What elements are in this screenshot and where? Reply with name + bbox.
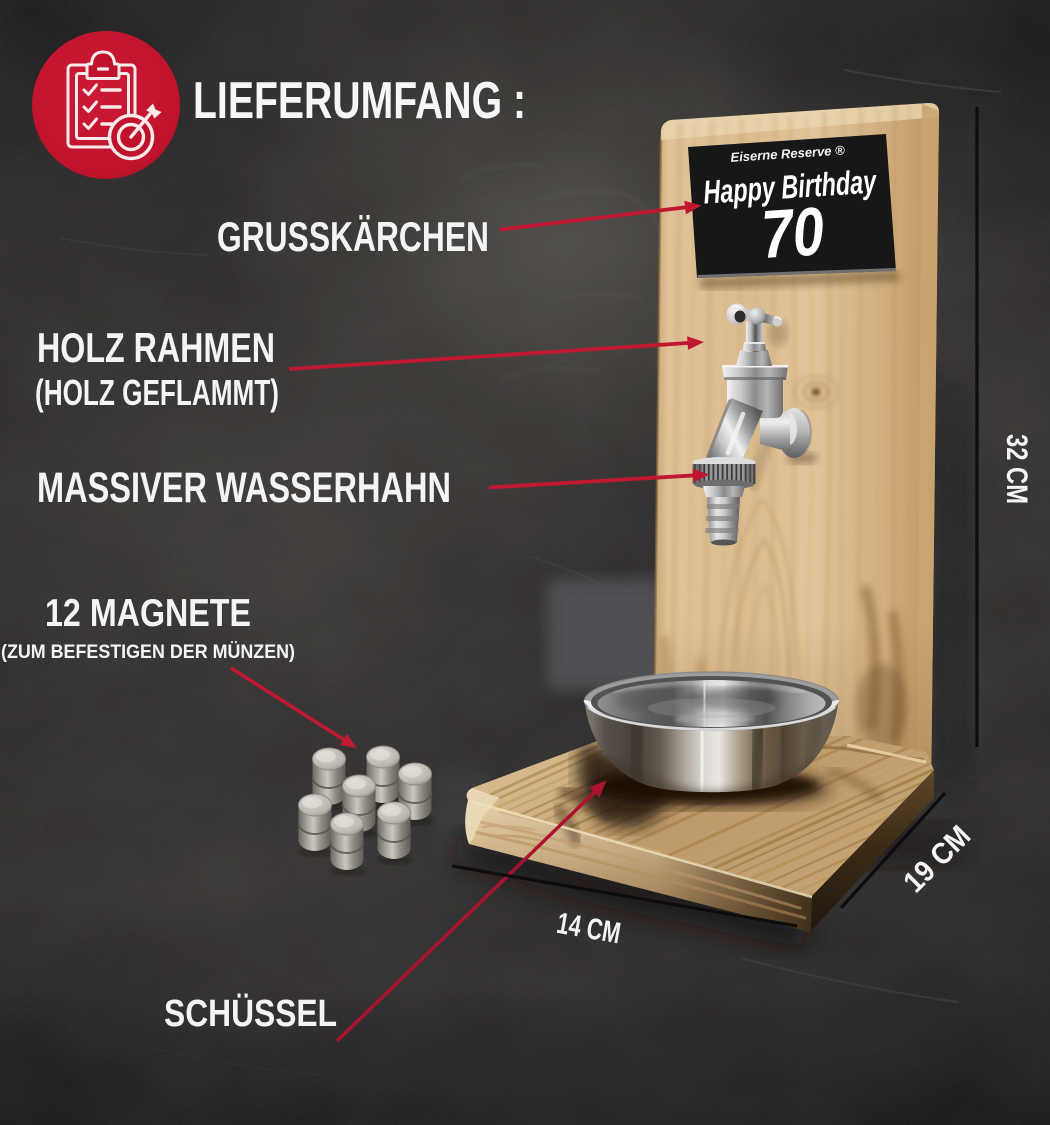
svg-text:70: 70 <box>759 193 826 273</box>
svg-text:LIEFERUMFANG :: LIEFERUMFANG : <box>193 72 526 130</box>
svg-text:HOLZ RAHMEN: HOLZ RAHMEN <box>37 324 275 371</box>
svg-text:MASSIVER WASSERHAHN: MASSIVER WASSERHAHN <box>37 464 451 512</box>
svg-text:SCHÜSSEL: SCHÜSSEL <box>164 992 337 1035</box>
svg-text:(HOLZ GEFLAMMT): (HOLZ GEFLAMMT) <box>35 372 279 413</box>
svg-text:32 CM: 32 CM <box>1000 434 1033 504</box>
svg-text:12 MAGNETE: 12 MAGNETE <box>45 592 251 635</box>
svg-text:(ZUM BEFESTIGEN DER MÜNZEN): (ZUM BEFESTIGEN DER MÜNZEN) <box>1 640 295 663</box>
svg-text:GRUSSKÄRCHEN: GRUSSKÄRCHEN <box>217 213 489 260</box>
